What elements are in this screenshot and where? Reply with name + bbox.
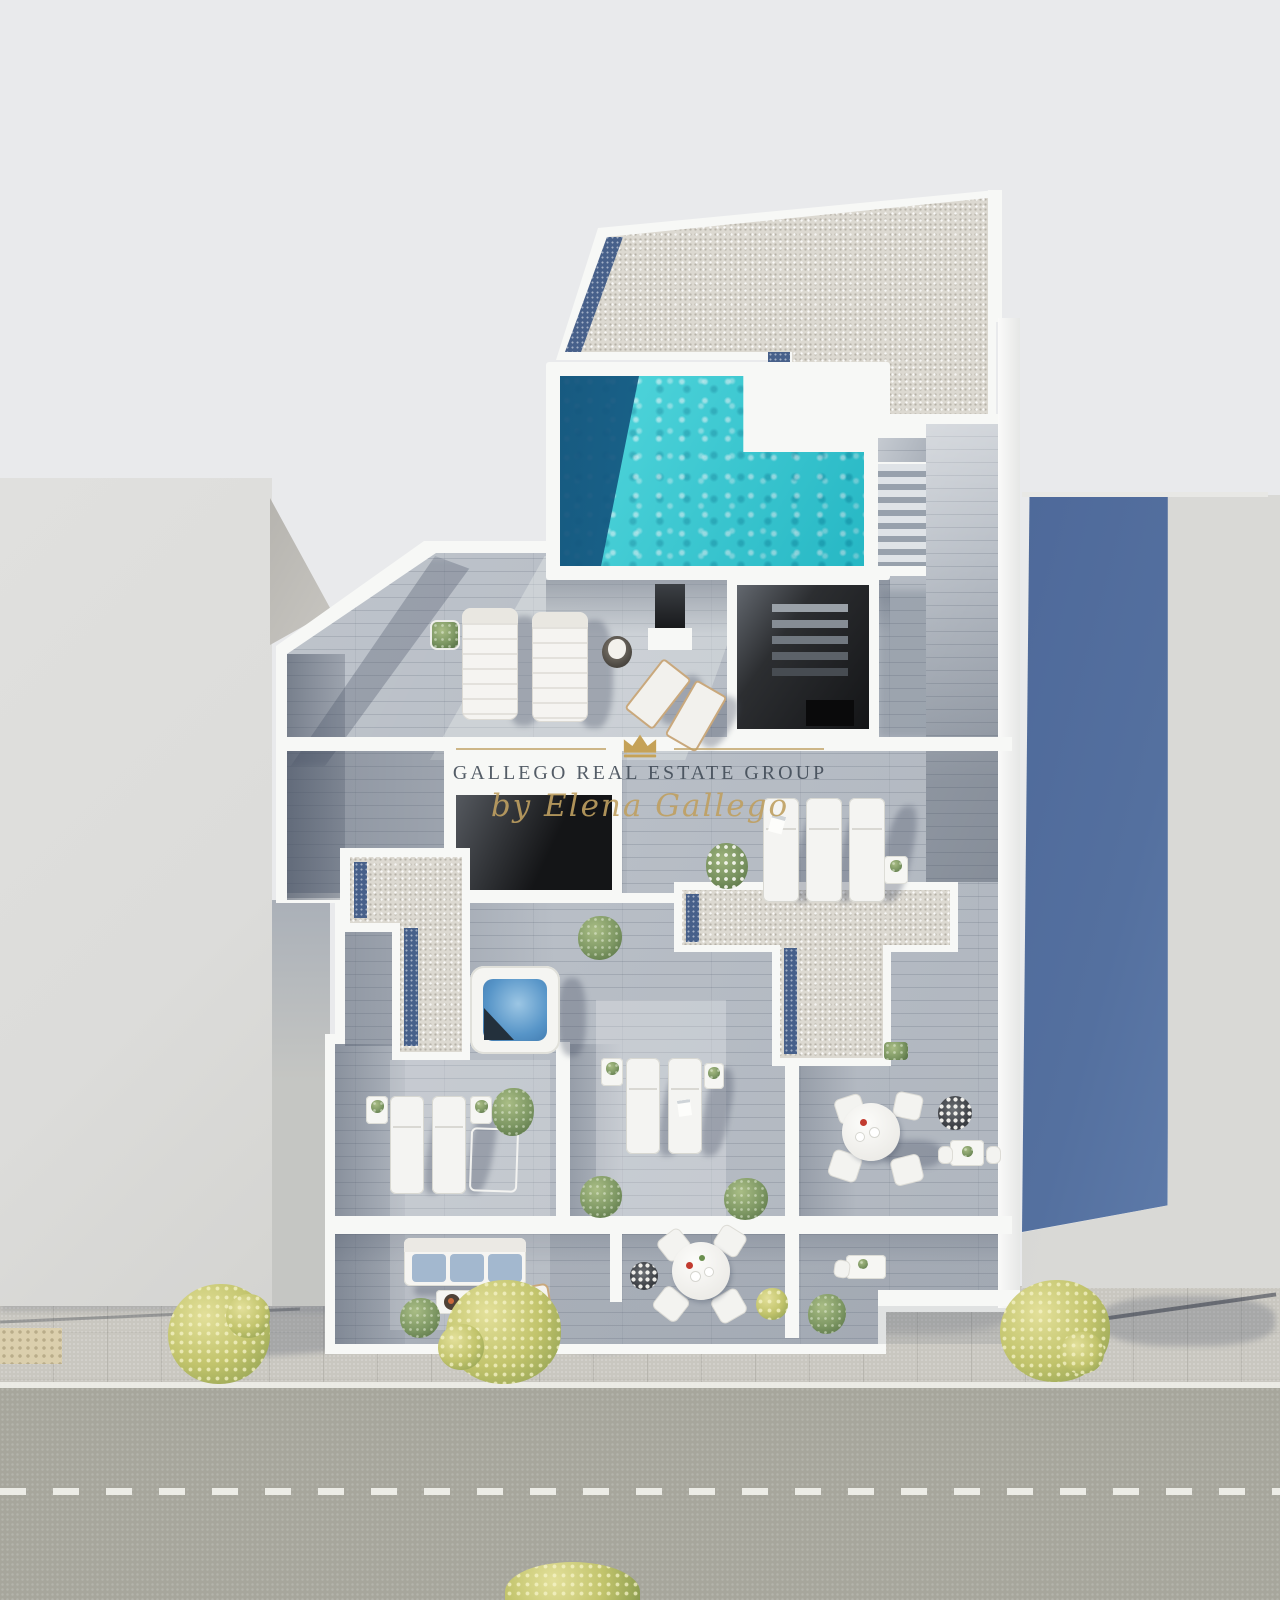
table-item-green: [699, 1255, 705, 1261]
stair-tread: [772, 604, 848, 612]
flower-planter: [630, 1262, 658, 1290]
bistro-chair: [986, 1146, 1001, 1164]
gravel-left-blue-strip-stem: [404, 928, 418, 1046]
alley-ground: [272, 900, 330, 1306]
gravel-right-blue-strip-stem: [784, 948, 797, 1054]
tactile-paving-strip: [0, 1328, 62, 1364]
panel-base: [648, 628, 692, 650]
stairwell-dark-corner: [806, 700, 854, 726]
stair-tread: [772, 668, 848, 676]
stair-tread: [772, 636, 848, 644]
terrace-bush-yellow: [756, 1288, 788, 1320]
bistro-chair: [938, 1146, 953, 1164]
right-neighbor-top-edge: [1022, 492, 1268, 497]
tree-lobe: [226, 1294, 270, 1338]
terrace-wall-vert-left: [556, 1042, 570, 1234]
watermark-brand: GALLEGO REAL ESTATE GROUP: [420, 762, 860, 785]
dining-chair: [892, 1090, 925, 1121]
table-item-red: [860, 1119, 867, 1126]
tree-lobe: [1060, 1332, 1104, 1374]
watermark-rule-left: [456, 748, 606, 750]
outdoor-sofa: [404, 1238, 526, 1286]
table-plate: [856, 1133, 864, 1141]
street-tree: [446, 1280, 561, 1384]
foliage-shadow-right-2: [1100, 1296, 1275, 1346]
street-tree: [1000, 1280, 1110, 1382]
street-asphalt: [0, 1382, 1280, 1600]
towels: [608, 639, 626, 659]
table-plate: [870, 1128, 879, 1137]
tray-item-orange: [448, 1298, 454, 1304]
sun-lounger: [432, 1096, 466, 1194]
sun-daybed: [462, 608, 518, 720]
walkway-shading: [926, 424, 1004, 882]
round-dining-table: [672, 1242, 730, 1300]
roof-right-rim: [988, 190, 1002, 322]
sofa-cushion: [450, 1254, 484, 1282]
hedge-box: [884, 1042, 908, 1060]
aerial-rooftop-render: GALLEGO REAL ESTATE GROUP by Elena Galle…: [0, 0, 1280, 1600]
round-dining-table: [842, 1103, 900, 1161]
sofa-backrest: [404, 1238, 526, 1252]
table-plate: [705, 1268, 713, 1276]
terrace-wall-vert-right: [785, 1056, 799, 1338]
stair-tread: [772, 620, 848, 628]
street-tree: [168, 1284, 270, 1384]
hot-tub-shadow: [558, 978, 586, 1056]
street-edge-line: [0, 1382, 1280, 1388]
street-center-dashed-line: [0, 1488, 1280, 1495]
watermark-byline: by Elena Gallego: [420, 788, 860, 824]
right-neighbor-shadow-face: [1022, 495, 1172, 1235]
stair-tread: [772, 652, 848, 660]
flower-planter: [938, 1096, 972, 1130]
terrace-wall-bottom-right: [878, 1290, 1020, 1306]
roof-access-stairs: [878, 464, 928, 566]
watermark-rule-right: [674, 748, 824, 750]
magazine: [677, 1099, 692, 1117]
gravel-right-blue-strip-top: [686, 894, 699, 942]
table-item-red: [686, 1262, 693, 1269]
hot-tub: [470, 966, 560, 1054]
table-plate: [691, 1272, 700, 1281]
watermark: GALLEGO REAL ESTATE GROUP by Elena Galle…: [420, 726, 860, 838]
planter-box-green: [432, 622, 458, 648]
main-right-wall: [998, 318, 1020, 1308]
terrace-wall-divider-bottom: [610, 1222, 622, 1302]
flower-bush: [706, 843, 748, 889]
crown-icon: [621, 732, 659, 760]
stair-landing: [878, 438, 928, 462]
lounge-chair-frame: [469, 1127, 519, 1193]
sun-lounger: [390, 1096, 424, 1194]
sofa-cushion: [488, 1254, 522, 1282]
tree-lobe: [438, 1324, 484, 1370]
gravel-left-blue-strip-top: [354, 862, 367, 918]
sun-daybed: [532, 612, 588, 722]
towel-side-table: [602, 636, 632, 668]
left-neighbor-building: [0, 478, 272, 1306]
sun-lounger: [626, 1058, 660, 1154]
sofa-cushion: [412, 1254, 446, 1282]
outdoor-panel: [655, 584, 685, 630]
stairwell-skylight-opening: [737, 585, 869, 729]
